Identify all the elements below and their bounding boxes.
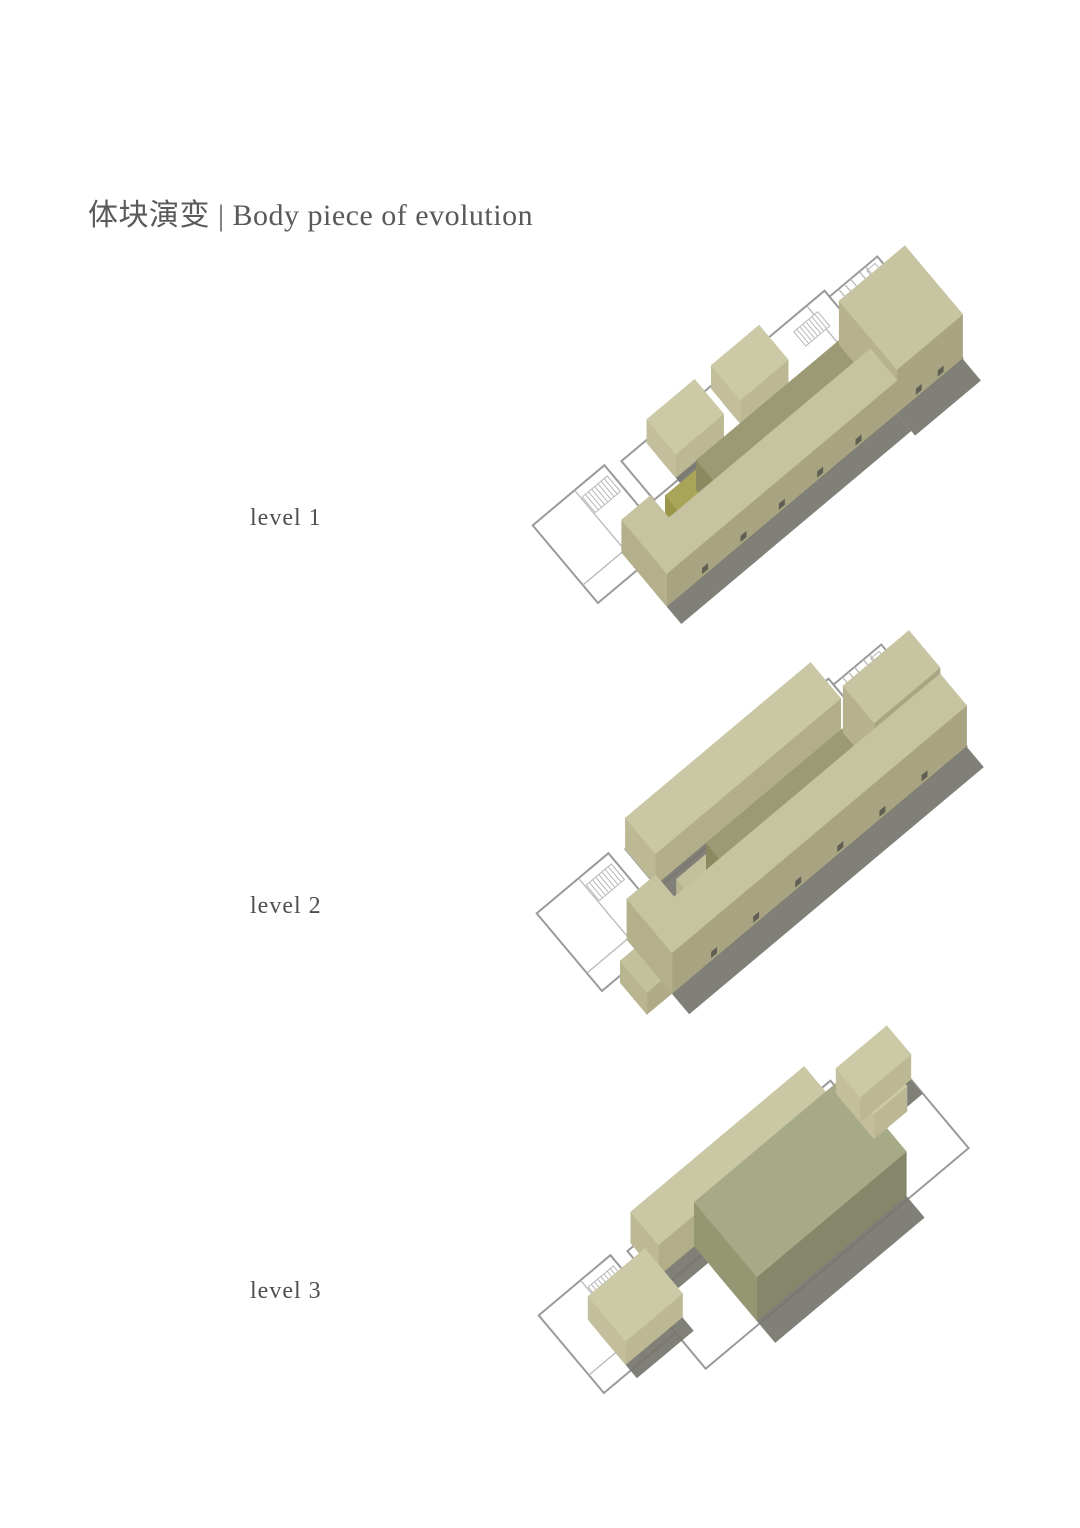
level-1-diagram [533, 246, 981, 624]
level-3-diagram [539, 1026, 969, 1393]
evolution-axonometric-diagrams [0, 0, 1080, 1528]
level-2-diagram [537, 631, 984, 1015]
presentation-page: 体块演变 | Body piece of evolution level 1 l… [0, 0, 1080, 1528]
